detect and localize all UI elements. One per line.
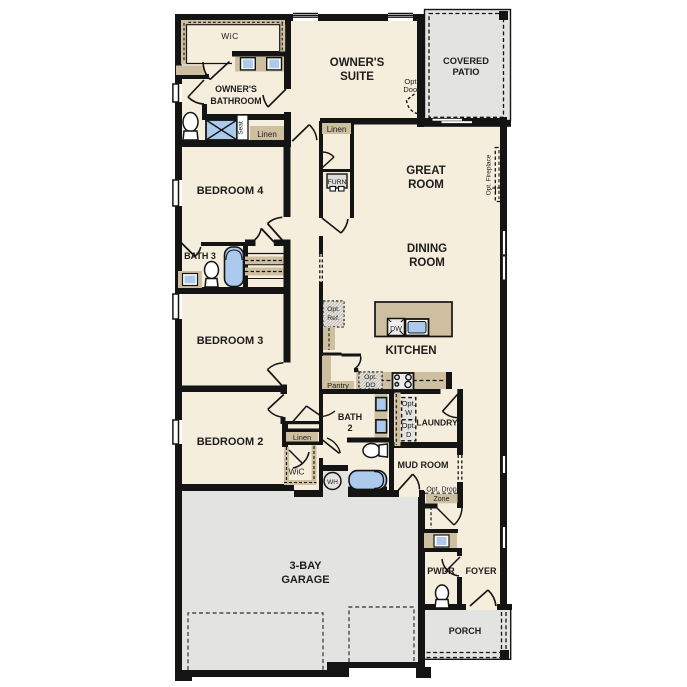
svg-text:Zone: Zone — [434, 496, 450, 503]
svg-text:GREAT: GREAT — [406, 165, 445, 177]
svg-text:COVERED: COVERED — [443, 56, 489, 66]
svg-text:Opt.: Opt. — [402, 399, 416, 408]
svg-text:DW: DW — [390, 326, 402, 333]
svg-text:FURN: FURN — [328, 179, 347, 186]
svg-text:Opt.: Opt. — [402, 421, 416, 430]
svg-text:Linen: Linen — [293, 433, 311, 442]
svg-text:WiC: WiC — [288, 467, 304, 477]
svg-text:D: D — [406, 430, 412, 439]
svg-text:OWNER'S: OWNER'S — [330, 57, 385, 69]
svg-text:Ref.: Ref. — [327, 315, 340, 322]
svg-text:BATH 3: BATH 3 — [184, 251, 216, 261]
svg-text:3-BAY: 3-BAY — [290, 560, 323, 572]
svg-text:MUD ROOM: MUD ROOM — [398, 460, 449, 470]
svg-text:Pantry: Pantry — [327, 381, 349, 390]
svg-text:FOYER: FOYER — [465, 566, 497, 576]
svg-text:BATH: BATH — [338, 412, 362, 422]
svg-text:LAUNDRY: LAUNDRY — [416, 418, 458, 428]
svg-text:Linen: Linen — [327, 125, 347, 134]
svg-text:ROOM: ROOM — [408, 179, 444, 191]
svg-text:BEDROOM 2: BEDROOM 2 — [197, 436, 264, 448]
svg-text:BEDROOM 4: BEDROOM 4 — [197, 185, 265, 197]
svg-text:2: 2 — [347, 423, 352, 433]
svg-text:Opt.: Opt. — [364, 374, 377, 381]
svg-text:W: W — [405, 408, 413, 417]
svg-text:SUITE: SUITE — [340, 71, 374, 83]
svg-text:Opt.: Opt. — [327, 306, 340, 313]
svg-text:Linen: Linen — [257, 130, 277, 139]
svg-text:Seat: Seat — [238, 121, 245, 135]
svg-text:Opt. Fireplace: Opt. Fireplace — [486, 154, 493, 195]
svg-text:OWNER'S: OWNER'S — [215, 84, 257, 94]
svg-text:WiC: WiC — [221, 31, 239, 41]
svg-text:Opt. Drop: Opt. Drop — [426, 487, 456, 494]
svg-text:DO: DO — [365, 382, 375, 389]
svg-text:PORCH: PORCH — [449, 626, 482, 636]
svg-text:GARAGE: GARAGE — [281, 574, 329, 586]
svg-text:DINING: DINING — [407, 243, 447, 255]
svg-text:ROOM: ROOM — [409, 257, 445, 269]
svg-text:KITCHEN: KITCHEN — [385, 345, 436, 357]
svg-text:WH: WH — [327, 479, 338, 486]
svg-text:PWDR: PWDR — [427, 566, 455, 576]
svg-text:Door: Door — [403, 85, 420, 94]
svg-text:PATIO: PATIO — [452, 67, 479, 77]
svg-text:BATHROOM: BATHROOM — [210, 96, 261, 106]
svg-text:BEDROOM 3: BEDROOM 3 — [197, 335, 264, 347]
